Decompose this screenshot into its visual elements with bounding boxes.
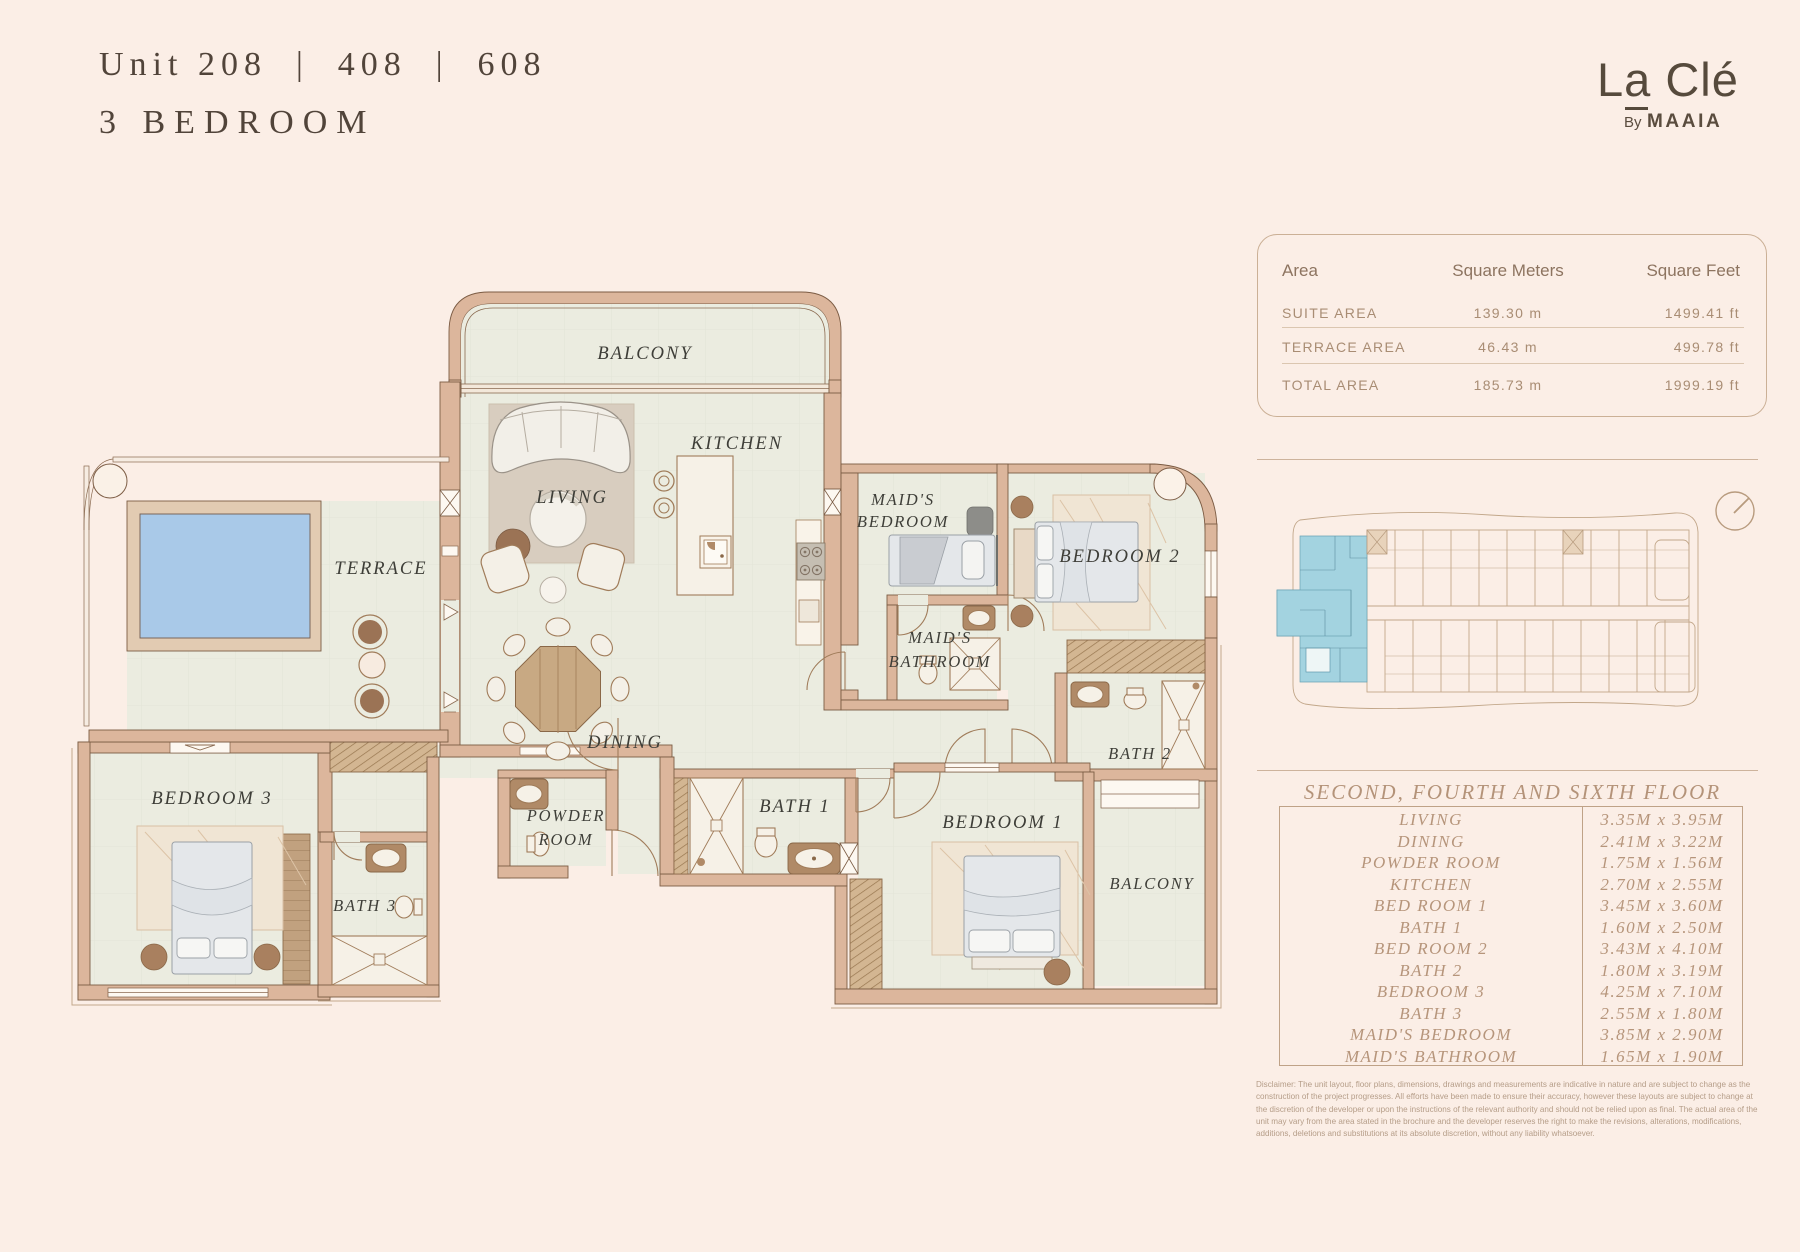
svg-text:BEDROOM: BEDROOM [857,512,949,531]
svg-text:BEDROOM 3: BEDROOM 3 [151,789,272,809]
svg-text:BEDROOM 2: BEDROOM 2 [1059,547,1180,567]
svg-text:MAID'S: MAID'S [870,490,935,509]
svg-text:BATHROOM: BATHROOM [889,652,992,671]
svg-text:MAID'S: MAID'S [907,628,972,647]
svg-text:DINING: DINING [586,733,663,753]
svg-text:ROOM: ROOM [538,830,594,849]
svg-text:LIVING: LIVING [535,488,608,508]
svg-text:BATH 2: BATH 2 [1108,744,1172,763]
svg-text:BATH 1: BATH 1 [759,797,830,817]
svg-text:KITCHEN: KITCHEN [690,434,783,454]
svg-text:BALCONY: BALCONY [1109,874,1194,893]
svg-text:BATH 3: BATH 3 [333,896,397,915]
svg-text:BEDROOM 1: BEDROOM 1 [942,813,1063,833]
svg-text:BALCONY: BALCONY [597,344,692,364]
svg-text:TERRACE: TERRACE [334,559,427,579]
svg-text:POWDER: POWDER [526,806,606,825]
